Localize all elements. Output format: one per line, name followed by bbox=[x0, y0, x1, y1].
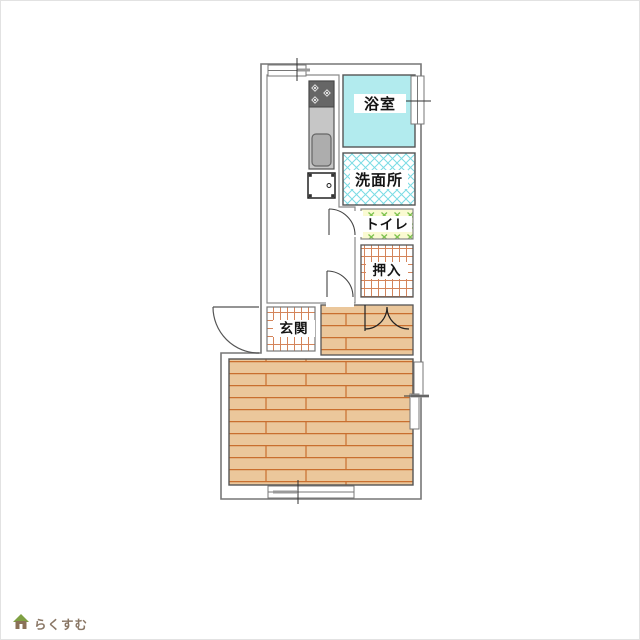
floorplan-page: 浴室 洗面所 トイレ 押入 玄関 らくすむ bbox=[0, 0, 640, 640]
washroom-label: 洗面所 bbox=[350, 170, 408, 189]
svg-text:トイレ: トイレ bbox=[365, 217, 409, 233]
washing-machine bbox=[308, 173, 335, 198]
toilet-doorway-opening bbox=[352, 211, 363, 237]
logo: らくすむ bbox=[13, 614, 88, 632]
logo-house-icon bbox=[13, 614, 29, 629]
genkan-label: 玄関 bbox=[273, 320, 315, 337]
toilet-label: トイレ bbox=[362, 216, 412, 233]
logo-text: らくすむ bbox=[34, 617, 88, 632]
svg-text:玄関: 玄関 bbox=[280, 320, 309, 337]
main-room bbox=[229, 359, 413, 485]
floorplan-drawing: 浴室 洗面所 トイレ 押入 玄関 らくすむ bbox=[1, 1, 640, 640]
kitchen-stove bbox=[309, 81, 334, 107]
closet-label: 押入 bbox=[366, 262, 408, 279]
svg-text:押入: 押入 bbox=[373, 262, 402, 279]
svg-text:洗面所: 洗面所 bbox=[355, 171, 403, 189]
kitchen-sink bbox=[312, 134, 331, 166]
hall-doorway-opening bbox=[326, 300, 354, 307]
svg-text:浴室: 浴室 bbox=[364, 95, 396, 113]
corridor bbox=[321, 305, 413, 355]
entrance-swing-door bbox=[213, 307, 259, 353]
bath-label: 浴室 bbox=[354, 94, 406, 113]
